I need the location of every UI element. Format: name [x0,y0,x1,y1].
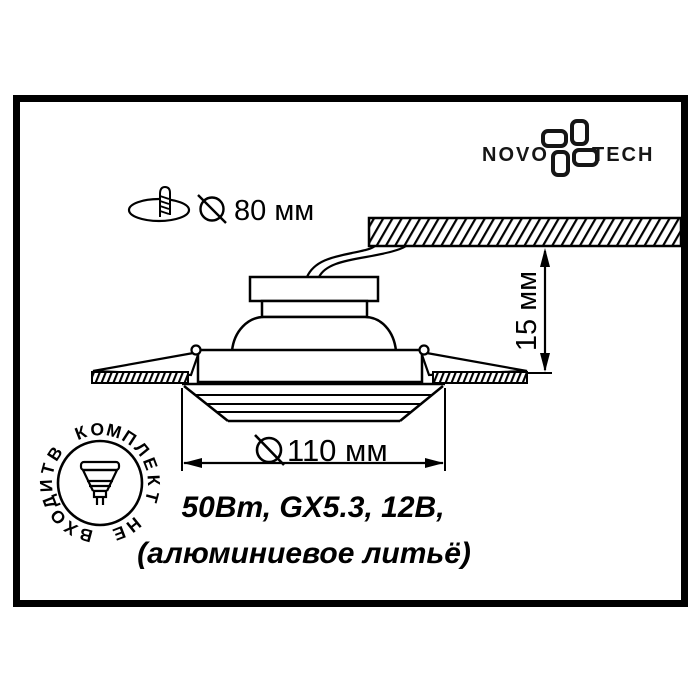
diameter-symbol-icon [255,435,284,465]
technical-drawing-page: NOVO TECH 80 мм [0,0,700,700]
badge-char: Т [141,489,163,505]
mounting-wire [307,246,406,277]
cutout-dimension: 80 мм [129,187,314,227]
caption-line2: (алюминиевое литьё) [137,537,471,570]
diameter-dimension: 110 мм [182,388,445,471]
badge-char: Е [139,455,162,473]
badge-char: К [144,474,165,486]
cutout-dimension-label: 80 мм [234,195,314,227]
not-included-badge: ВКОМПЛЕКТНЕВХОДИТ [36,419,164,546]
fixture-trim [182,384,445,421]
badge-char: О [90,419,105,440]
badge-char: К [72,421,89,444]
badge-circle [58,441,142,525]
fixture-neck [262,301,367,317]
novotech-logo: NOVO TECH [482,121,654,175]
depth-dimension-label: 15 мм [511,271,543,351]
pinwheel-icon [543,121,597,175]
logo-text-right: TECH [592,144,654,166]
screw-icon [160,187,170,217]
ceiling-panel [369,218,681,246]
diameter-symbol-icon [198,195,226,223]
badge-char: И [36,479,57,493]
fixture [93,277,527,382]
diameter-dimension-label: 110 мм [287,433,388,468]
caption-line1: 50Вт, GX5.3, 12В, [181,491,444,524]
fixture-screw-left [192,346,201,355]
badge-char: В [77,524,94,547]
badge-char: Е [110,522,128,545]
fixture-screw-right [420,346,429,355]
cutout-hole-icon [129,187,189,221]
drawing-svg: NOVO TECH 80 мм [0,0,700,700]
fixture-terminal-box [250,277,378,301]
fixture-dome [232,317,396,351]
badge-char: Т [37,461,59,477]
logo-text-left: NOVO [482,144,549,166]
depth-dimension: 15 мм [511,248,552,373]
fixture-body [198,350,422,382]
ceiling-strip-left [92,372,188,383]
ceiling-strip-right [433,372,527,383]
